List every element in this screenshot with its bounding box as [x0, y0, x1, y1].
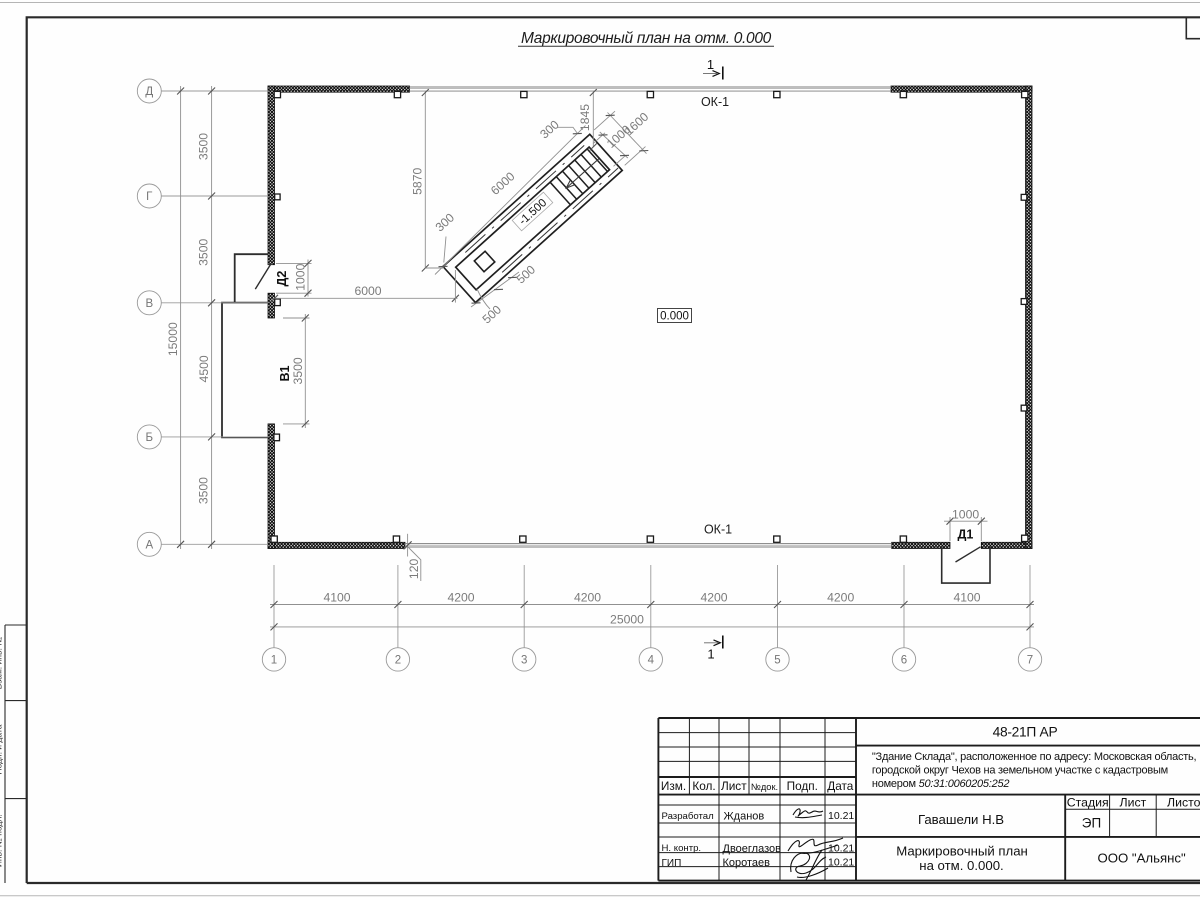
svg-text:6: 6	[901, 655, 907, 667]
svg-text:номером 50:31:0060205:252: номером 50:31:0060205:252	[872, 778, 1009, 790]
svg-text:4200: 4200	[574, 590, 601, 604]
svg-text:№док.: №док.	[751, 782, 778, 792]
svg-text:Стадия: Стадия	[1067, 796, 1109, 810]
svg-text:1: 1	[707, 647, 714, 662]
svg-text:7: 7	[1027, 655, 1033, 667]
svg-text:Подп.: Подп.	[787, 779, 818, 793]
svg-text:ОК-1: ОК-1	[704, 523, 732, 537]
svg-text:2: 2	[395, 655, 401, 667]
svg-text:48-21П АР: 48-21П АР	[993, 725, 1058, 740]
svg-text:ОК-1: ОК-1	[701, 95, 729, 109]
svg-text:Д1: Д1	[958, 528, 974, 542]
svg-text:А: А	[145, 540, 153, 552]
svg-text:Изм.: Изм.	[661, 779, 686, 793]
svg-text:5: 5	[774, 655, 780, 667]
svg-text:Лист: Лист	[1120, 796, 1147, 810]
svg-text:300: 300	[537, 117, 562, 141]
svg-text:В: В	[145, 298, 153, 310]
svg-text:10.21: 10.21	[828, 810, 854, 822]
svg-text:Двоеглазов: Двоеглазов	[723, 843, 782, 855]
svg-text:25000: 25000	[610, 613, 644, 627]
svg-text:15000: 15000	[166, 322, 180, 356]
svg-text:ЭП: ЭП	[1082, 815, 1101, 830]
svg-text:6000: 6000	[488, 169, 518, 198]
svg-text:Г: Г	[146, 191, 153, 203]
svg-text:Лист: Лист	[721, 779, 747, 793]
svg-text:Гавашели Н.В: Гавашели Н.В	[918, 812, 1004, 827]
svg-text:Д2: Д2	[275, 271, 289, 287]
svg-text:1845: 1845	[578, 104, 592, 131]
svg-text:ГИП: ГИП	[662, 858, 682, 869]
svg-text:4200: 4200	[447, 590, 474, 604]
svg-text:Дата: Дата	[827, 779, 854, 793]
svg-text:4100: 4100	[953, 590, 980, 604]
svg-text:Инв. № подл.: Инв. № подл.	[0, 814, 3, 867]
svg-text:Маркировочный план: Маркировочный план	[896, 843, 1028, 858]
svg-text:Н. контр.: Н. контр.	[662, 843, 702, 854]
svg-text:Д: Д	[145, 86, 153, 98]
svg-text:4100: 4100	[323, 590, 350, 604]
svg-text:1: 1	[271, 655, 277, 667]
svg-text:ООО "Альянс": ООО "Альянс"	[1098, 851, 1186, 866]
svg-text:10.21: 10.21	[828, 857, 854, 869]
svg-text:4500: 4500	[197, 355, 211, 382]
svg-text:0.000: 0.000	[660, 311, 689, 323]
svg-text:Коротаев: Коротаев	[723, 857, 771, 869]
svg-text:Разработал: Разработал	[662, 811, 714, 822]
svg-text:500: 500	[480, 302, 505, 326]
svg-text:"Здание Склада", расположенное: "Здание Склада", расположенное по адресу…	[872, 751, 1197, 763]
svg-text:Б: Б	[146, 432, 154, 444]
svg-text:3500: 3500	[291, 357, 305, 384]
svg-text:4200: 4200	[700, 590, 727, 604]
svg-text:5870: 5870	[410, 168, 424, 195]
svg-text:10.21: 10.21	[828, 842, 854, 854]
svg-text:1000: 1000	[952, 507, 979, 521]
svg-text:120: 120	[407, 559, 421, 580]
svg-text:Кол.: Кол.	[692, 779, 715, 793]
svg-text:3500: 3500	[197, 133, 211, 160]
svg-text:городской округ Чехов на земел: городской округ Чехов на земельном участ…	[872, 765, 1168, 777]
svg-text:Подп. и дата: Подп. и дата	[0, 724, 3, 774]
svg-text:Взам. инв. №: Взам. инв. №	[0, 637, 3, 690]
svg-text:на отм. 0.000.: на отм. 0.000.	[919, 858, 1003, 873]
svg-text:3500: 3500	[197, 239, 211, 266]
svg-text:Листов: Листов	[1167, 796, 1200, 810]
svg-text:6000: 6000	[354, 284, 381, 298]
svg-text:1: 1	[707, 57, 714, 72]
svg-text:300: 300	[433, 210, 458, 234]
svg-text:Маркировочный план на отм. 0.0: Маркировочный план на отм. 0.000	[521, 30, 772, 47]
svg-text:3500: 3500	[197, 477, 211, 504]
svg-text:4200: 4200	[827, 590, 854, 604]
svg-text:3: 3	[521, 655, 527, 667]
svg-text:4: 4	[648, 655, 655, 667]
svg-text:1000: 1000	[293, 263, 307, 290]
svg-text:Жданов: Жданов	[724, 810, 765, 822]
